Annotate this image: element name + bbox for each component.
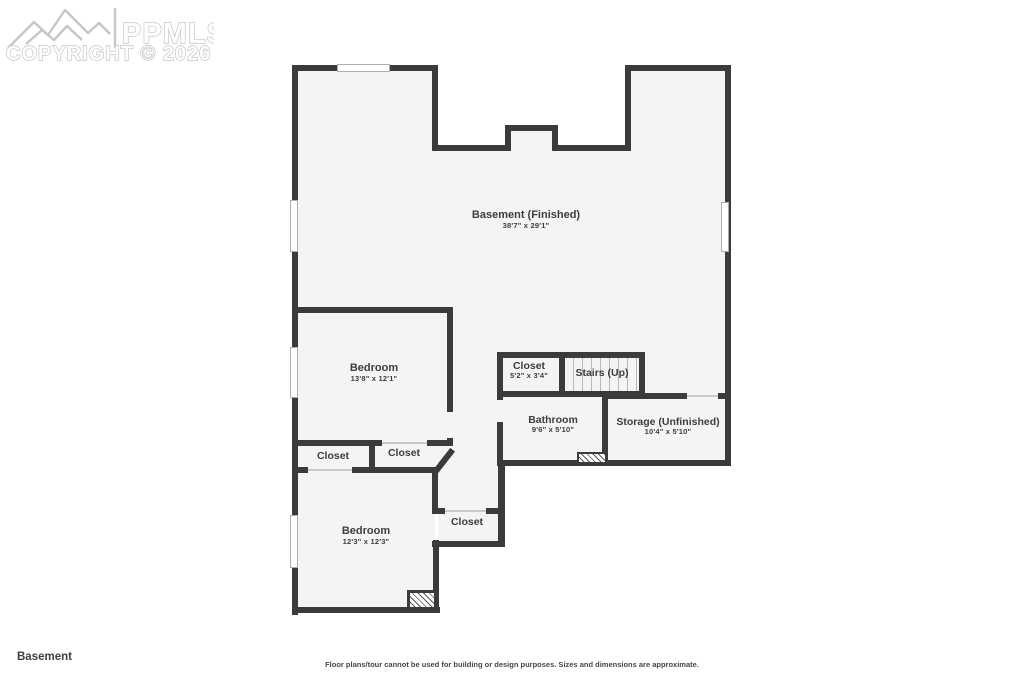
wall [432, 508, 445, 514]
wall [718, 393, 731, 399]
room-dimensions: 12'3" x 12'3" [342, 538, 390, 547]
wall [427, 440, 453, 446]
room-name: Basement (Finished) [472, 209, 580, 222]
wall [505, 125, 558, 131]
room-label-storage-unfinished: Storage (Unfinished) 10'4" x 5'10" [616, 416, 719, 437]
wall [552, 145, 631, 151]
room-dimensions: 5'2" x 3'4" [510, 372, 548, 381]
wall [447, 307, 453, 412]
mountain-icon [8, 8, 115, 48]
wall [486, 508, 505, 514]
wall [498, 460, 731, 466]
disclaimer-text: Floor plans/tour cannot be used for buil… [0, 660, 1024, 669]
wall [498, 460, 505, 547]
door-opening [308, 469, 352, 471]
wall [432, 541, 505, 547]
room-name: Bedroom [342, 525, 390, 538]
wall [625, 65, 631, 151]
room-label-closet-right: Closet [388, 447, 420, 459]
ppmls-watermark-logo: PPMLS COPYRIGHT © 2026 [4, 2, 214, 62]
wall [497, 393, 503, 400]
room-name: Closet [388, 447, 420, 459]
room-name: Bedroom [350, 362, 398, 375]
wall [352, 467, 438, 473]
wall [292, 307, 453, 313]
room-dimensions: 9'6" x 5'10" [528, 426, 578, 435]
window [337, 64, 390, 72]
wall [725, 65, 731, 466]
wall [497, 422, 503, 466]
room-label-bathroom: Bathroom 9'6" x 5'10" [528, 414, 578, 435]
floor-plan-page: PPMLS COPYRIGHT © 2026 [0, 0, 1024, 682]
watermark-copyright-text: COPYRIGHT © 2026 [6, 43, 211, 62]
room-label-stairs-up: Stairs (Up) [575, 367, 628, 379]
wall [497, 352, 645, 358]
wall [432, 467, 438, 513]
room-dimensions: 38'7" x 29'1" [472, 222, 580, 231]
door-opening [687, 395, 718, 397]
window [290, 347, 298, 398]
room-label-bedroom-2: Bedroom 12'3" x 12'3" [342, 525, 390, 546]
door-opening [445, 510, 486, 512]
wall [292, 467, 308, 473]
room-dimensions: 10'4" x 5'10" [616, 428, 719, 437]
room-fill [508, 128, 555, 148]
room-name: Closet [451, 516, 483, 528]
wall [625, 65, 731, 71]
window [290, 515, 298, 568]
wall [432, 65, 438, 151]
room-dimensions: 13'8" x 12'1" [350, 375, 398, 384]
room-name: Stairs (Up) [575, 367, 628, 379]
door-opening [382, 442, 427, 444]
room-name: Closet [317, 450, 349, 462]
wall [497, 391, 645, 397]
room-label-closet-bottom: Closet [451, 516, 483, 528]
wall [432, 145, 511, 151]
hatched-area [407, 590, 437, 610]
hatched-area [577, 452, 607, 464]
window [721, 202, 729, 252]
room-label-basement-finished: Basement (Finished) 38'7" x 29'1" [472, 209, 580, 230]
room-fill [438, 463, 502, 544]
room-label-bedroom-1: Bedroom 13'8" x 12'1" [350, 362, 398, 383]
room-label-closet-stairs: Closet 5'2" x 3'4" [510, 360, 548, 381]
window [290, 200, 298, 252]
room-label-closet-left: Closet [317, 450, 349, 462]
